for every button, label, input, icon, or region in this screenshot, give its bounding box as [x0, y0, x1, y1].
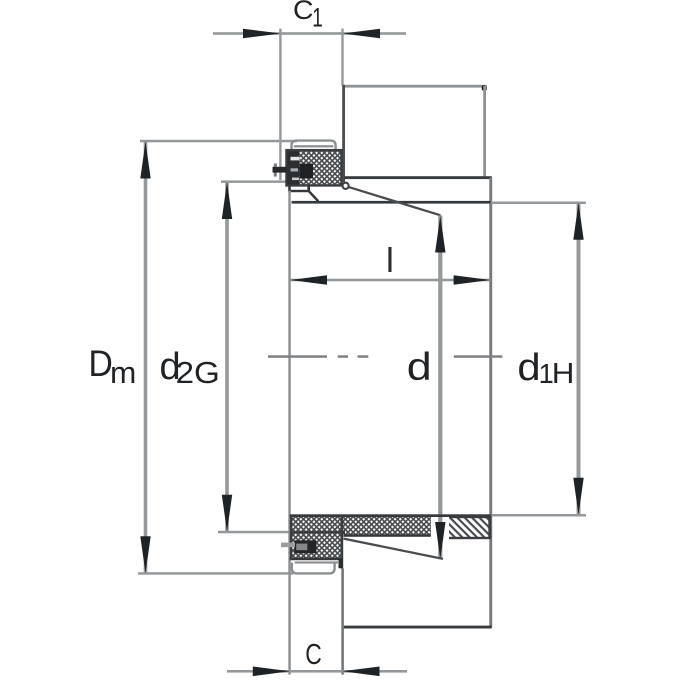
- svg-text:C: C: [293, 0, 313, 25]
- svg-text:m: m: [110, 355, 136, 390]
- svg-text:d: d: [517, 347, 540, 389]
- svg-text:2G: 2G: [176, 355, 220, 390]
- svg-text:d: d: [407, 345, 432, 389]
- svg-text:C: C: [305, 637, 322, 670]
- svg-text:H: H: [552, 358, 575, 389]
- svg-text:1: 1: [312, 2, 323, 32]
